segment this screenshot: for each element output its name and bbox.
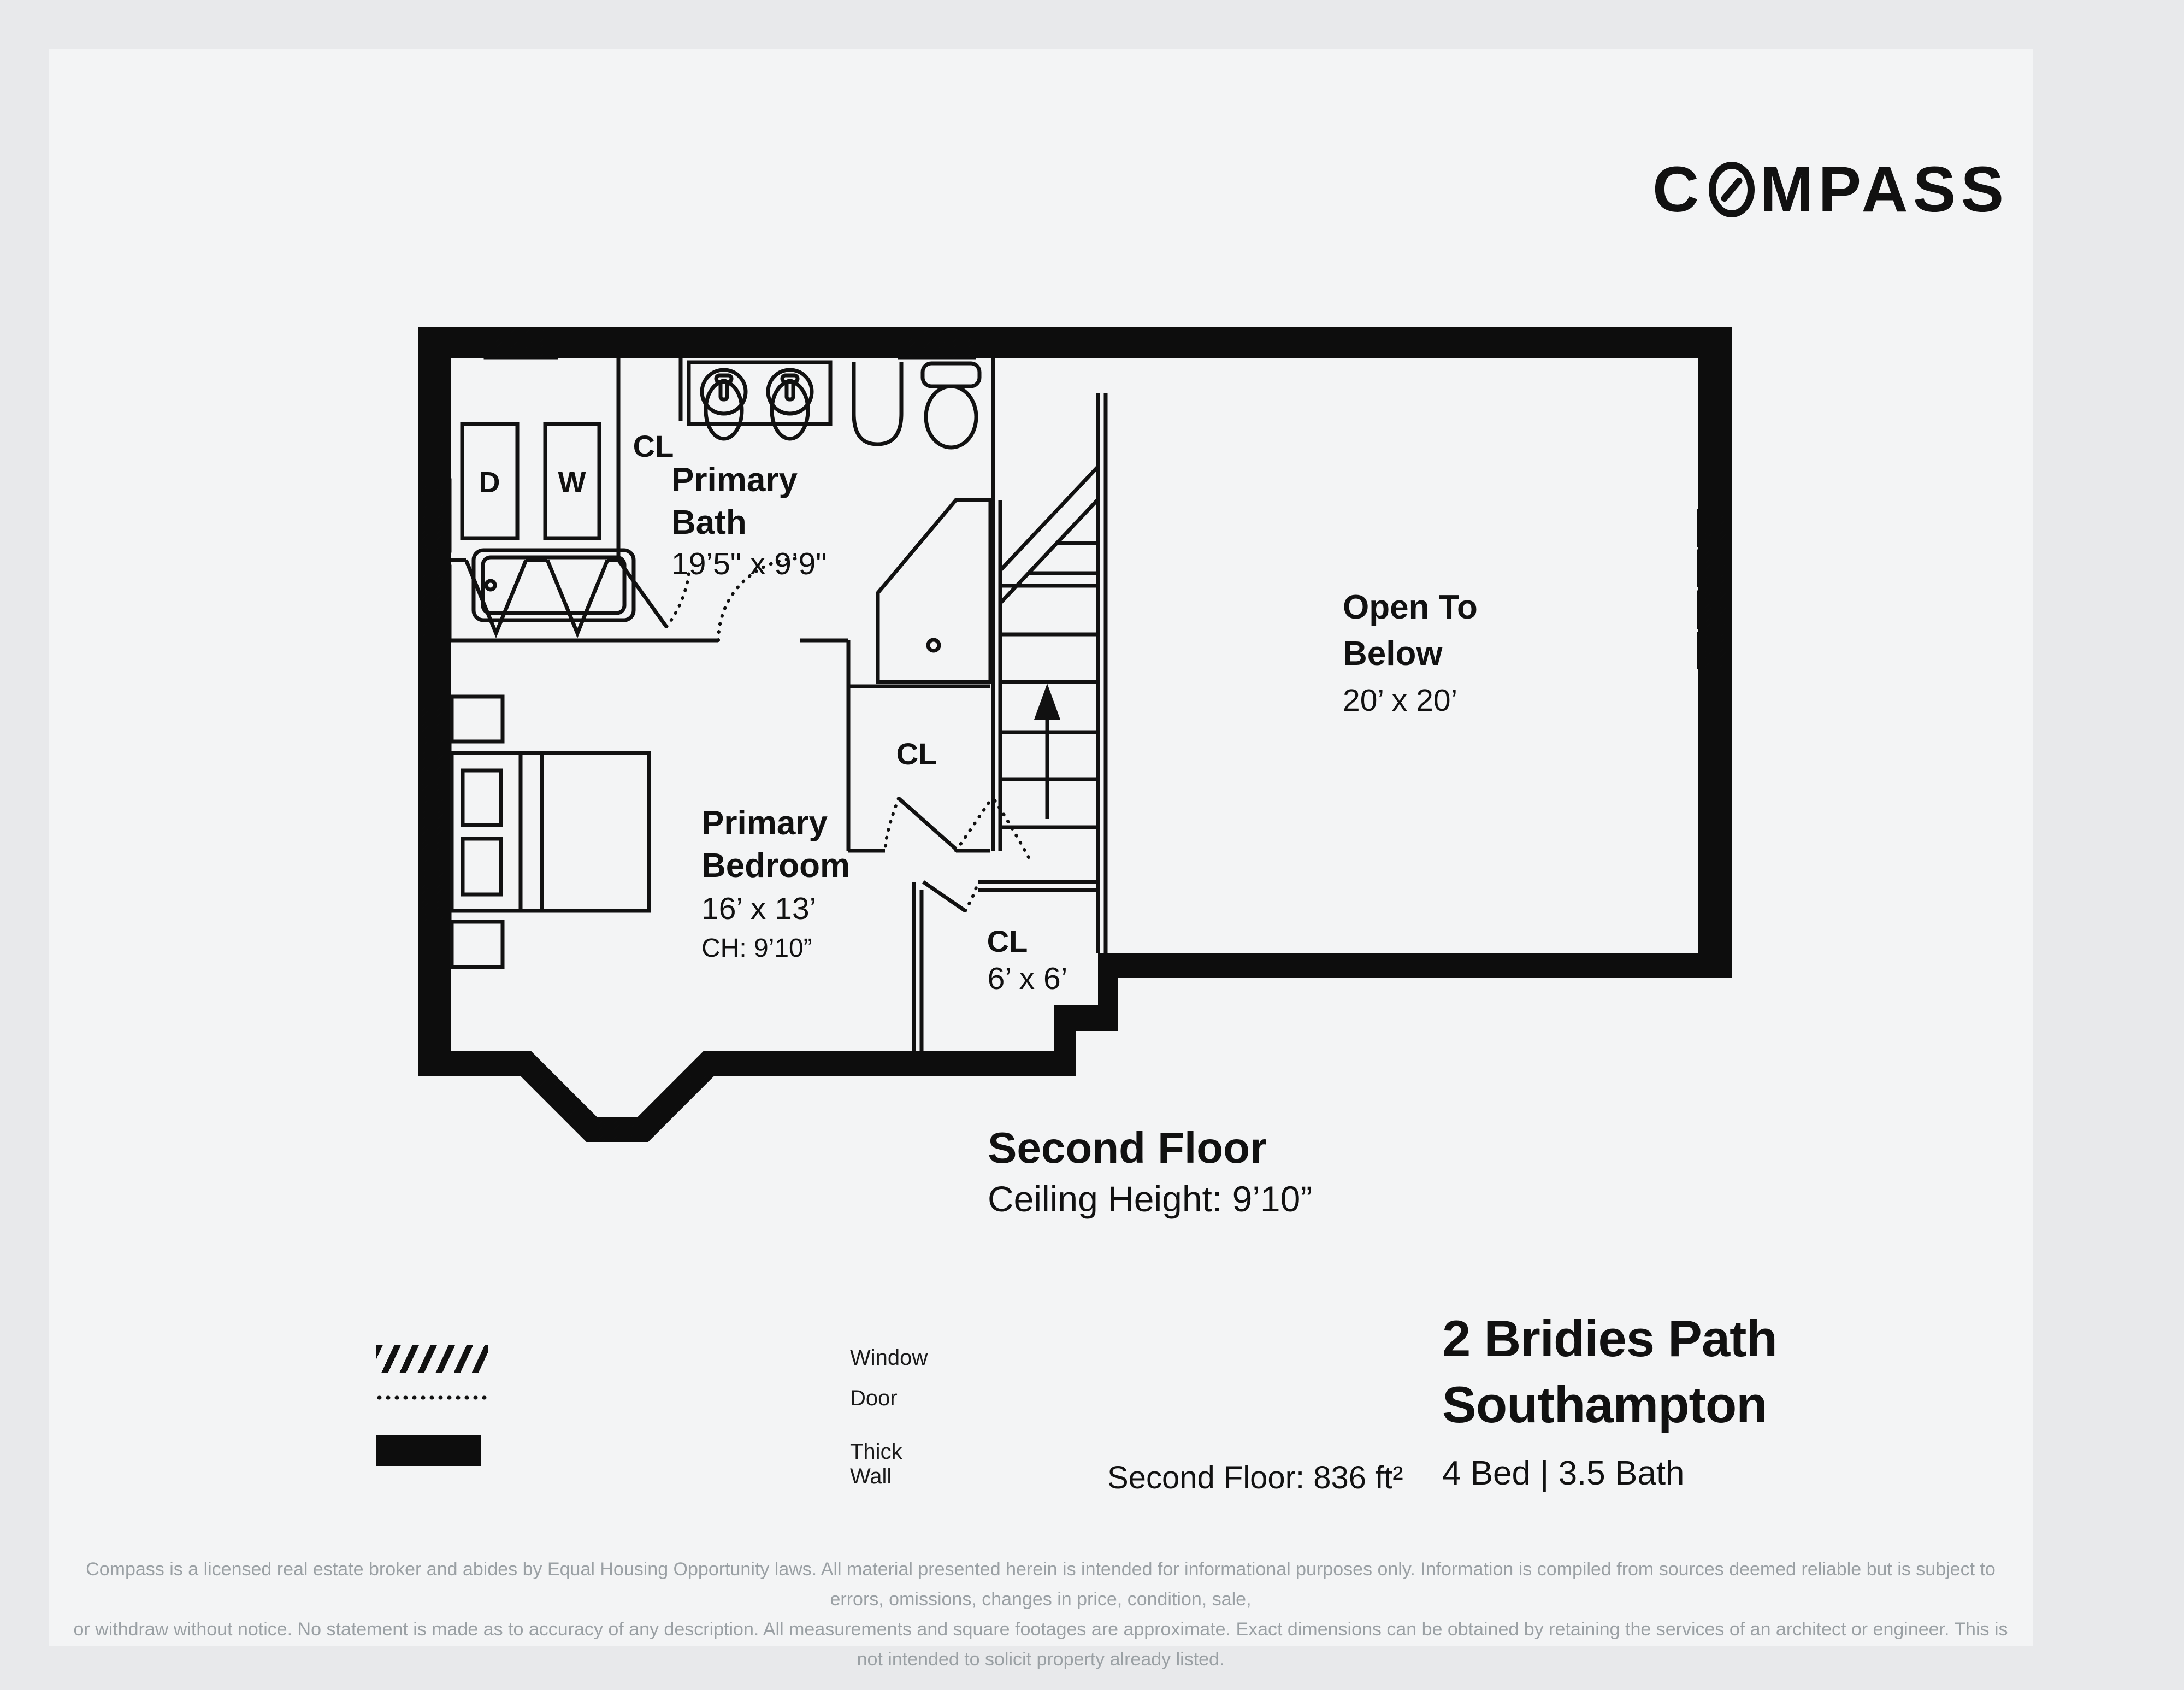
svg-text:16’ x 13’: 16’ x 13’ [701,891,816,926]
closet-mid-door-swing [886,798,899,846]
listing-address: 2 Bridies Path Southampton [1442,1305,1777,1438]
bedroom-label: Primary Bedroom 16’ x 13’ CH: 9’10” [701,804,850,963]
svg-text:Bath: Bath [671,504,747,541]
legend-door: Door [376,1394,488,1404]
shower [878,500,990,682]
open-below-label: Open To Below 20’ x 20’ [1343,588,1478,718]
svg-text:CH: 9’10”: CH: 9’10” [701,934,812,963]
closet-top-label: CL [633,429,674,463]
sink-right [768,370,812,439]
floor-title: Second Floor Ceiling Height: 9’10” [988,1121,1312,1222]
bath-vanity [681,358,830,439]
shower-drain-icon [928,640,939,651]
closet6-door-leaf [923,882,965,911]
floor-name: Second Floor [988,1121,1312,1175]
closet6-door-swing [965,886,977,911]
legend-door-label: Door [850,1386,898,1411]
svg-text:Bedroom: Bedroom [701,847,850,885]
washer-label: W [558,466,586,499]
toilet-with-tank-icon [923,363,979,447]
bed-icon [452,753,649,911]
disclaimer: Compass is a licensed real estate broker… [68,1554,2013,1675]
ceiling-height: Ceiling Height: 9’10” [988,1175,1312,1222]
bath-label: Primary Bath 19’5" x 9’9" [671,461,827,581]
floor-area: Second Floor: 836 ft² [1107,1459,1403,1496]
compass-needle-icon [1720,176,1744,203]
bifold-door-washer [547,560,607,633]
laundry-closet: D W [451,358,618,633]
nightstand-icon [452,922,503,967]
legend-window-label: Window [850,1346,928,1370]
nightstand-icon [452,697,503,741]
dryer-label: D [479,466,500,499]
svg-text:Primary: Primary [671,461,798,499]
sink-left [702,370,746,439]
pillow-icon [463,770,501,825]
window-swatch-icon [376,1345,488,1373]
floorplan-card: C MPASS [49,49,2033,1646]
thick-wall-swatch-icon [376,1435,481,1466]
svg-text:Below: Below [1343,635,1443,673]
floorplan-drawing: D W CL [418,327,1732,1144]
svg-text:Open To: Open To [1343,588,1478,626]
closet6-label: CL [987,924,1028,958]
thick-walls [418,327,1732,1129]
disclaimer-line1: Compass is a licensed real estate broker… [68,1554,2013,1615]
closet6-dims: 6’ x 6’ [988,961,1068,996]
logo-text-left: C [1652,152,1704,227]
compass-o-icon [1709,162,1755,217]
hall-closet-mid: CL [848,737,990,851]
svg-text:20’ x 20’: 20’ x 20’ [1343,683,1457,718]
address-line2: Southampton [1442,1371,1777,1438]
disclaimer-line2: or withdraw without notice. No statement… [68,1615,2013,1675]
stairs-arrow-head-icon [1034,684,1060,720]
closet-mid-label: CL [896,737,937,771]
svg-text:19’5" x 9’9": 19’5" x 9’9" [671,546,827,581]
logo-text-right: MPASS [1760,152,2009,227]
legend-window: Window [376,1345,488,1373]
compass-logo: C MPASS [1652,152,2009,227]
staircase [1000,393,1106,953]
legend-thick-wall-label: Thick Wall [850,1440,902,1489]
address-line1: 2 Bridies Path [1442,1305,1777,1371]
bath-walls [451,358,1000,851]
closet-mid-door-leaf [899,798,956,849]
svg-text:Primary: Primary [701,804,828,842]
beds-baths: 4 Bed | 3.5 Bath [1442,1454,1685,1493]
legend-thick-wall: Thick Wall [376,1435,481,1466]
toilet-icon [854,362,901,444]
pillow-icon [463,839,501,894]
door-swatch-icon [376,1394,488,1402]
